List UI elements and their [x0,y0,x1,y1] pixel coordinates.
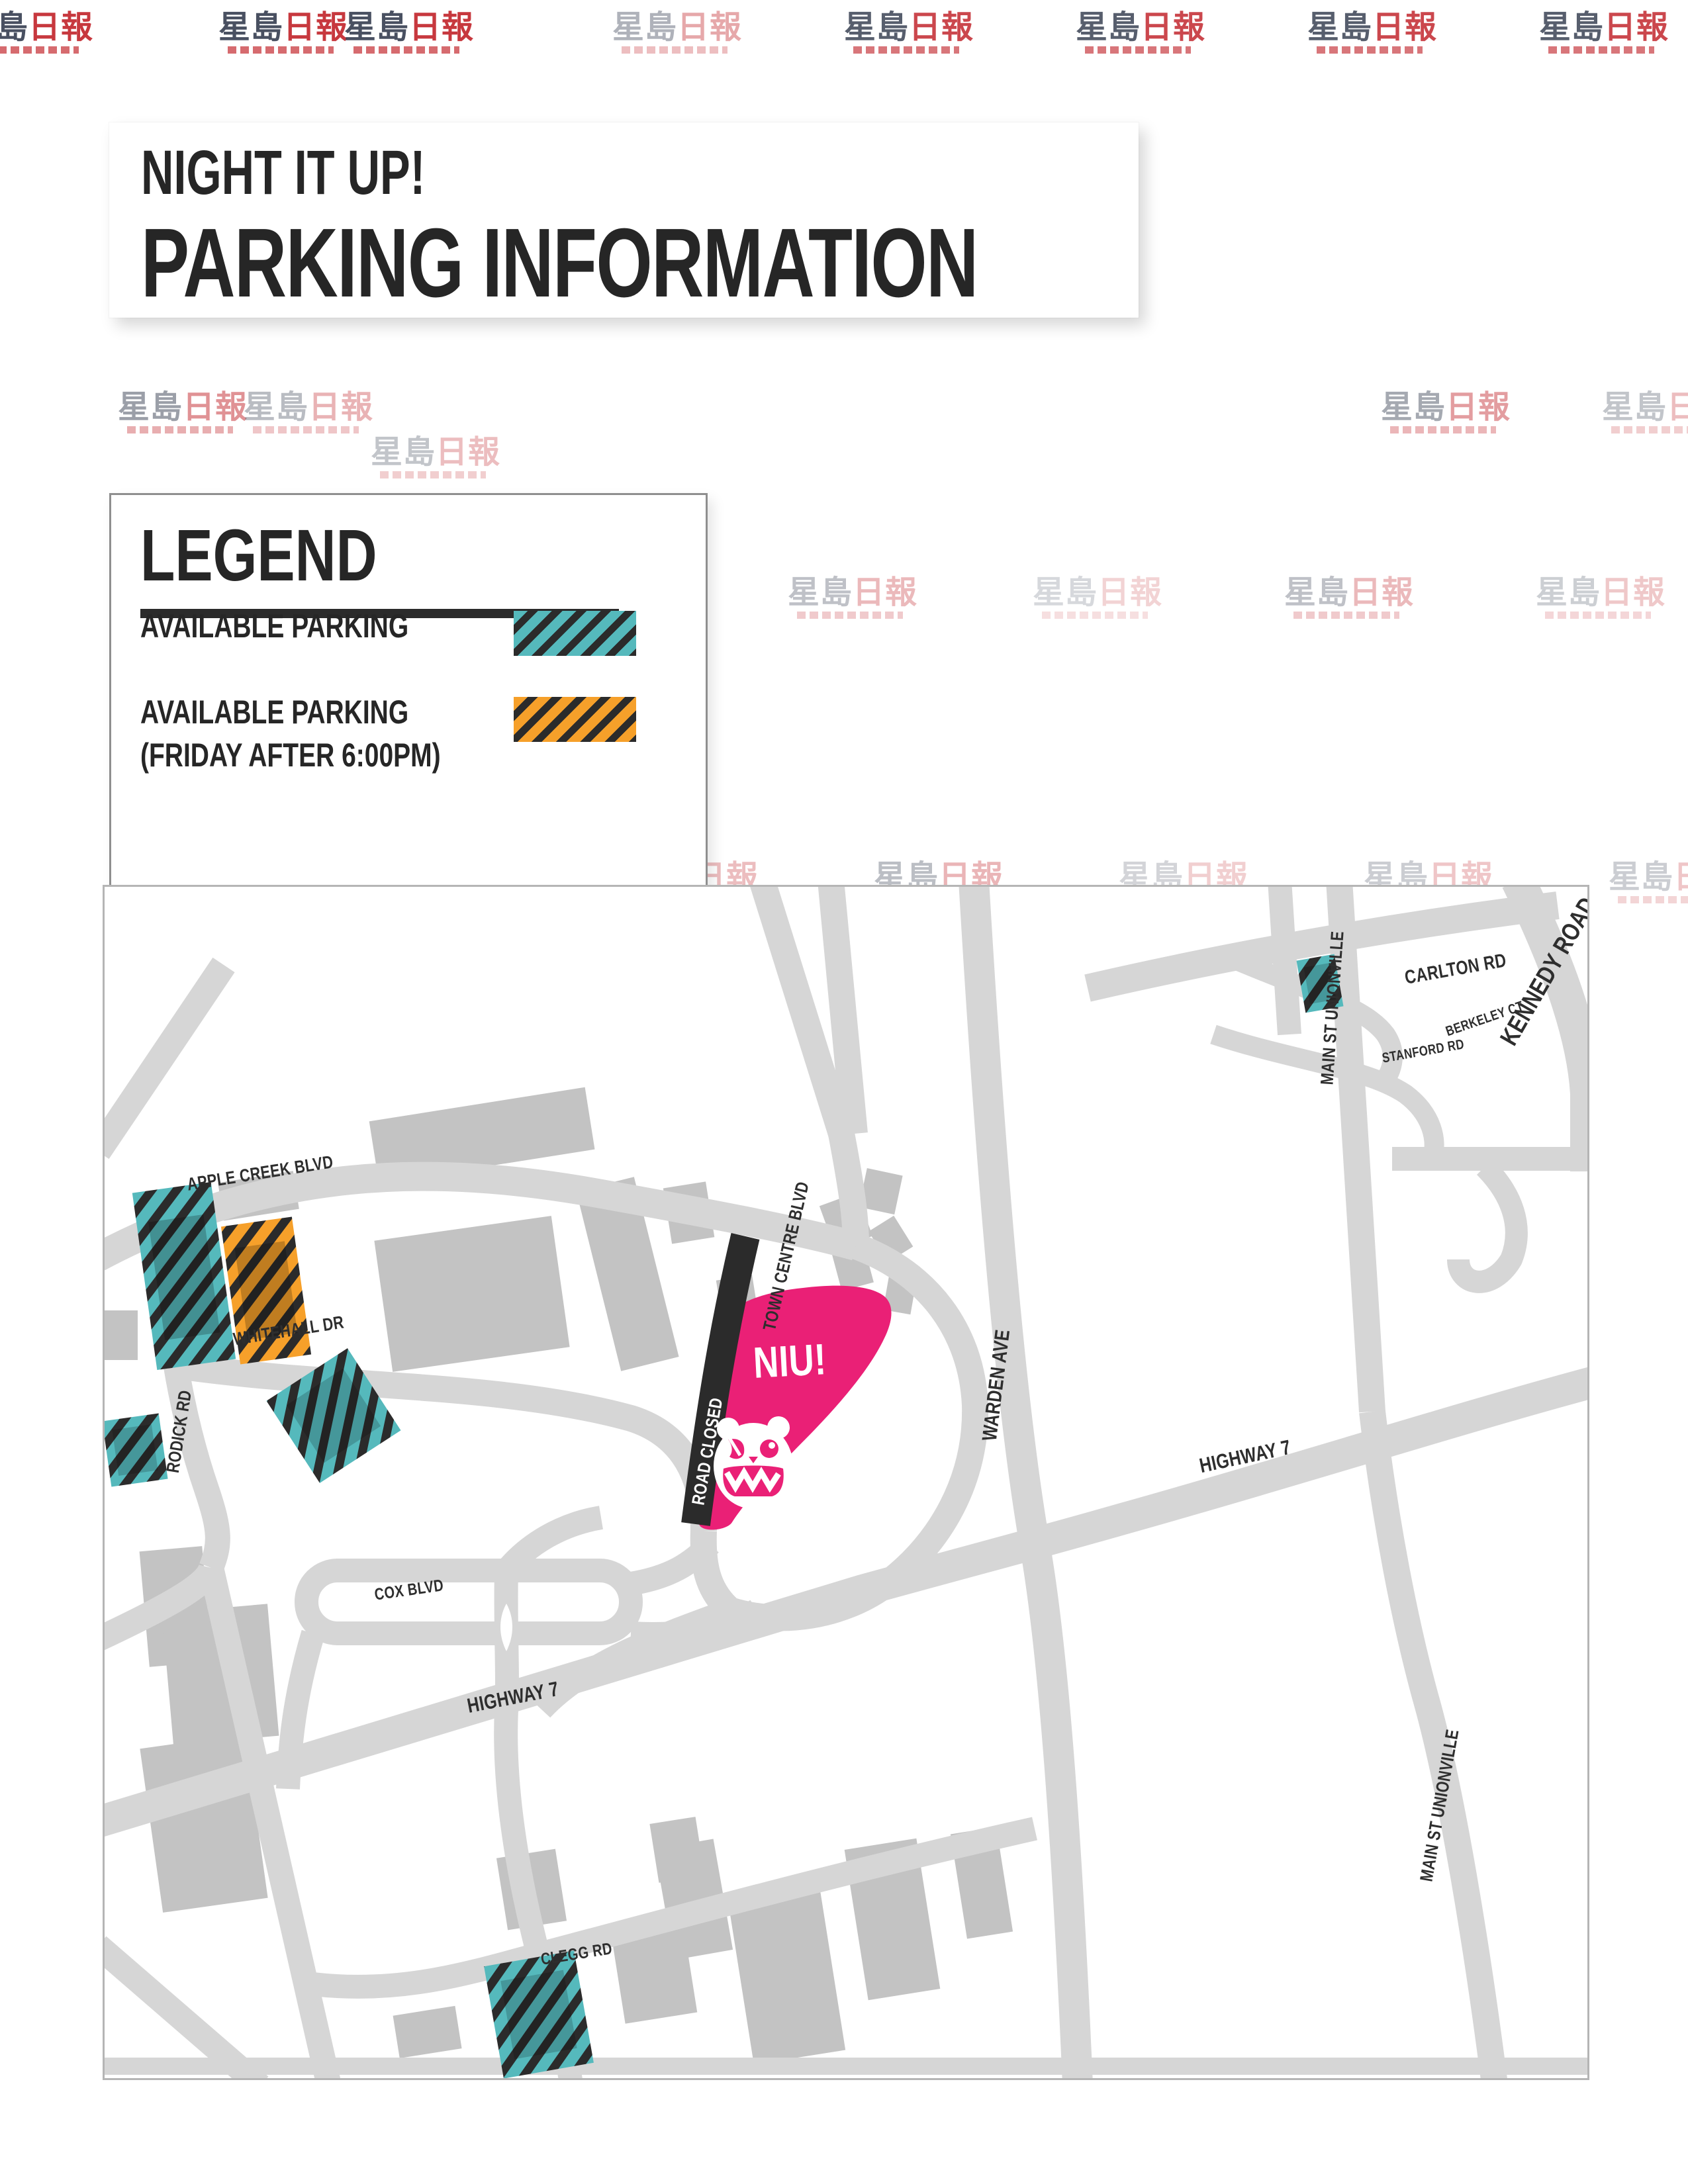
legend-item-available-parking-friday: AVAILABLE PARKING (FRIDAY AFTER 6:00PM) [140,691,441,777]
legend-swatch-available-parking-friday [514,697,636,742]
parking-block-clegg [484,1950,594,2078]
poster-page: 星島日報星島日報星島日報星島日報星島日報星島日報星島日報星島日報星島日報星島日報… [0,0,1688,2184]
niu-mascot-icon [714,1416,793,1509]
legend-item-label: AVAILABLE PARKING [140,691,441,734]
title-box: NIGHT IT UP! PARKING INFORMATION [109,122,1139,318]
watermark-item: 星島日報 [1602,392,1688,433]
watermark-item: 星島日報 [1609,862,1688,903]
watermark-item: 星島日報 [218,12,351,54]
legend-swatch-available-parking [514,611,636,656]
map-canvas [105,887,1587,2078]
watermark-item: 星島日報 [371,437,503,478]
watermark-item: 星島日報 [1307,12,1440,54]
legend-item-sublabel: (FRIDAY AFTER 6:00PM) [140,734,441,777]
watermark-item: 星島日報 [1033,577,1165,619]
event-title: NIGHT IT UP! [141,137,425,209]
watermark-item: 星島日報 [1536,577,1668,619]
watermark-item: 星島日報 [344,12,477,54]
watermark-item: 星島日報 [244,392,376,433]
watermark-item: 星島日報 [1076,12,1208,54]
legend-item-label: AVAILABLE PARKING [140,608,408,645]
watermark-item: 星島日報 [1284,577,1417,619]
watermark-item: 星島日報 [844,12,976,54]
page-title: PARKING INFORMATION [141,207,978,320]
parking-block-friday-orange [221,1217,311,1365]
roads-layer [105,887,1587,2078]
legend-box: LEGEND AVAILABLE PARKING AVAILABLE PARKI… [109,493,708,905]
legend-item-available-parking: AVAILABLE PARKING [140,605,408,648]
legend-heading: LEGEND [140,514,377,598]
watermark-item: 星島日報 [612,12,745,54]
watermark-item: 星島日報 [1381,392,1513,433]
watermark-item: 星島日報 [0,12,96,54]
watermark-item: 星島日報 [118,392,250,433]
watermark-item: 星島日報 [788,577,920,619]
map: APPLE CREEK BLVDWHITEHALL DRRODICK RDCOX… [103,885,1589,2080]
watermark-item: 星島日報 [1539,12,1671,54]
parking-block-rodick [105,1414,168,1487]
